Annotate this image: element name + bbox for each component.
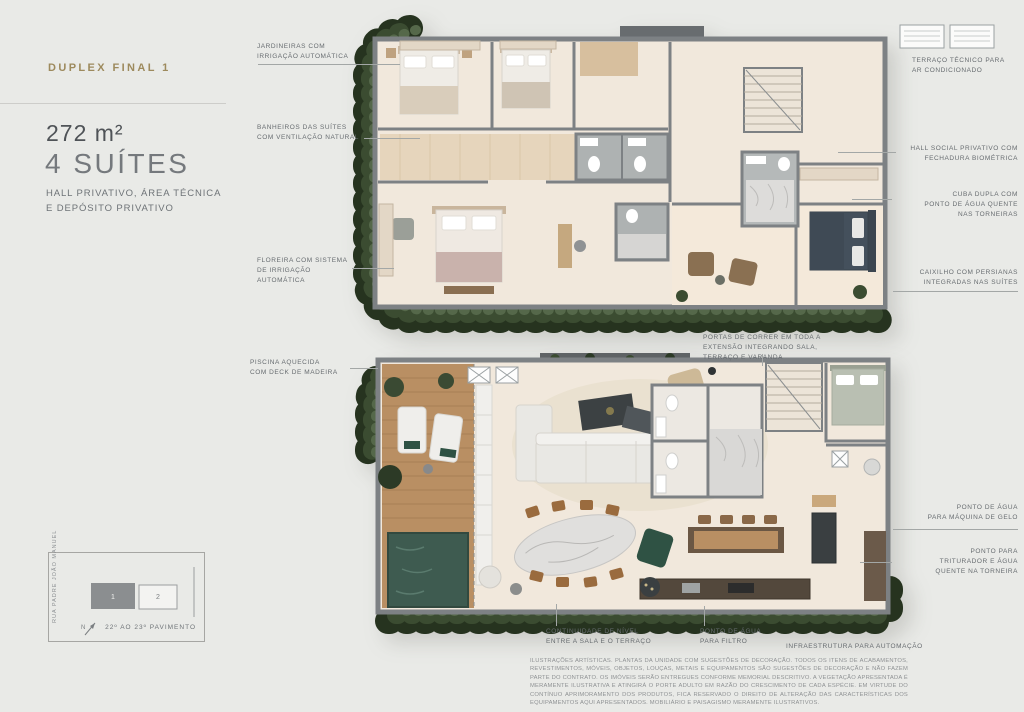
callout-banheiros-ventilacao: BANHEIROS DAS SUÍTES COM VENTILAÇÃO NATU… bbox=[257, 123, 387, 143]
leader-line bbox=[762, 354, 763, 366]
callout-automacao: INFRAESTRUTURA PARA AUTOMAÇÃO bbox=[786, 642, 1001, 652]
stairs-upper bbox=[744, 68, 802, 132]
sideboard bbox=[476, 385, 492, 585]
callout-hall-biometria: HALL SOCIAL PRIVATIVO COM FECHADURA BIOM… bbox=[888, 144, 1018, 164]
foyer bbox=[580, 42, 638, 76]
callout-caixilho-persianas: CAIXILHO COM PERSIANAS INTEGRADAS NAS SU… bbox=[893, 268, 1018, 288]
leader-line bbox=[258, 64, 400, 65]
ac-units-icon bbox=[898, 20, 998, 52]
leader-line bbox=[893, 529, 1018, 530]
bathrooms-center bbox=[576, 134, 668, 180]
bed-suite-4 bbox=[810, 210, 876, 272]
tower-1-label: 1 bbox=[111, 594, 115, 601]
leader-line bbox=[352, 268, 394, 269]
callout-triturador: PONTO PARA TRITURADOR E ÁGUA QUENTE NA T… bbox=[893, 547, 1018, 576]
callout-portas-correr: PORTAS DE CORRER EM TODA A EXTENSÃO INTE… bbox=[703, 333, 868, 362]
callout-terraco-tecnico: TERRAÇO TÉCNICO PARA AR CONDICIONADO bbox=[912, 56, 1022, 76]
callout-jardineiras: JARDINEIRAS COM IRRIGAÇÃO AUTOMÁTICA bbox=[257, 42, 382, 62]
leader-line bbox=[350, 368, 378, 369]
area-value: 272 m² bbox=[46, 120, 124, 147]
floors-caption: 22º AO 23º PAVIMENTO bbox=[105, 624, 196, 631]
keyplan: RUA PADRE JOÃO MANUEL 1 2 N 22º AO 23º P… bbox=[48, 552, 205, 642]
leader-line bbox=[893, 291, 1018, 292]
bathroom-marble-upper bbox=[742, 152, 798, 226]
bathroom-lower-center bbox=[616, 204, 668, 260]
callout-nivel-sala-terraco: CONTINUIDADE DE NÍVEL ENTRE A SALA E O T… bbox=[546, 627, 691, 647]
suites-value: 4 SUÍTES bbox=[45, 148, 189, 180]
page-title: DUPLEX FINAL 1 bbox=[48, 62, 171, 74]
callout-maquina-gelo: PONTO DE ÁGUA PARA MÁQUINA DE GELO bbox=[893, 503, 1018, 523]
pool bbox=[388, 533, 468, 607]
tower-2-label: 2 bbox=[156, 594, 160, 601]
title-divider bbox=[0, 103, 226, 104]
upper-floor-plan bbox=[340, 14, 910, 344]
bathroom-lower bbox=[652, 385, 762, 497]
leader-line bbox=[364, 138, 420, 139]
leader-line bbox=[556, 604, 557, 626]
legal-disclaimer: ILUSTRAÇÕES ARTÍSTICAS. PLANTAS DA UNIDA… bbox=[530, 657, 908, 707]
north-label: N bbox=[81, 625, 85, 631]
plan-description: HALL PRIVATIVO, ÁREA TÉCNICA E DEPÓSITO … bbox=[46, 186, 236, 216]
stairs-lower bbox=[766, 363, 822, 431]
leader-line bbox=[860, 562, 892, 563]
bed-suite-2 bbox=[500, 46, 552, 108]
leader-line bbox=[838, 152, 896, 153]
lower-floor-plan bbox=[340, 345, 910, 655]
leader-line bbox=[704, 606, 705, 626]
north-arrow-icon: N bbox=[81, 623, 95, 635]
callout-floreira: FLOREIRA COM SISTEMA DE IRRIGAÇÃO AUTOMÁ… bbox=[257, 256, 377, 285]
leader-line bbox=[852, 199, 892, 200]
callout-cuba-dupla: CUBA DUPLA COM PONTO DE ÁGUA QUENTE NAS … bbox=[893, 190, 1018, 219]
